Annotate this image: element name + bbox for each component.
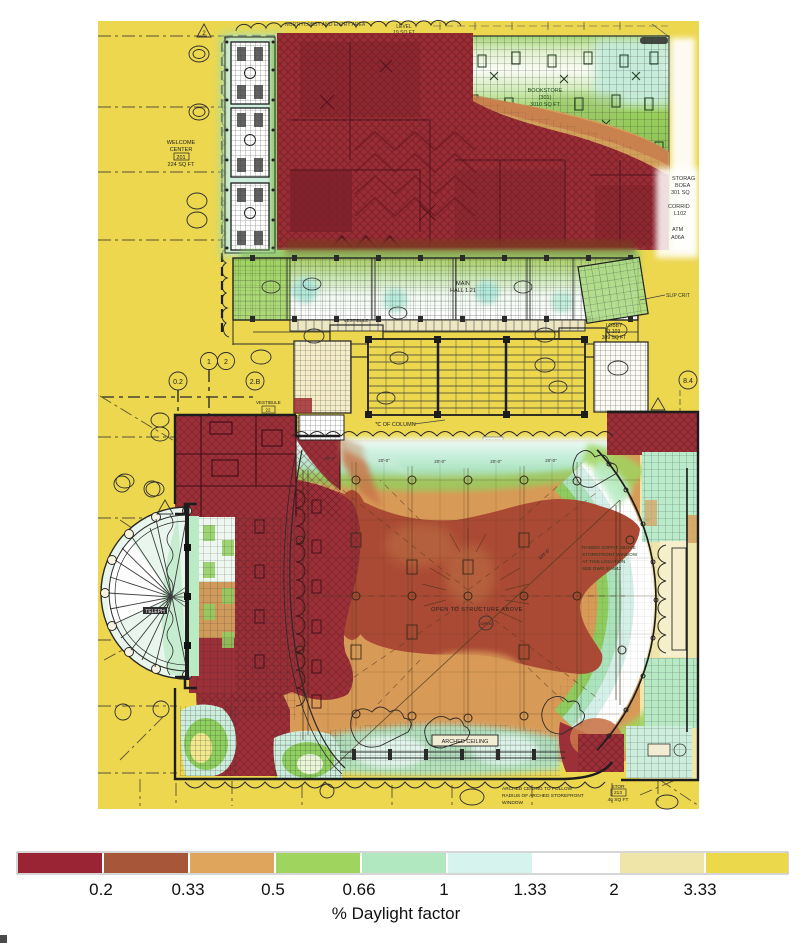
svg-text:0.33: 0.33: [171, 880, 204, 899]
svg-text:0.2: 0.2: [89, 880, 113, 899]
svg-text:1.33: 1.33: [513, 880, 546, 899]
svg-text:22: 22: [265, 408, 271, 413]
svg-text:% Daylight factor: % Daylight factor: [332, 904, 461, 923]
svg-text:RADIUS OF ARCHED STOREFRONT: RADIUS OF ARCHED STOREFRONT: [502, 793, 584, 799]
svg-text:3.33: 3.33: [683, 880, 716, 899]
svg-text:WELCOME: WELCOME: [167, 140, 196, 146]
svg-text:20'-0": 20'-0": [434, 459, 446, 464]
svg-text:BOEA: BOEA: [675, 183, 691, 189]
svg-text:SEE DWG 2/A642: SEE DWG 2/A642: [582, 566, 622, 572]
svg-text:2.B: 2.B: [250, 379, 261, 386]
svg-text:46 SQ FT: 46 SQ FT: [608, 797, 629, 803]
svg-text:AT THIS LOCATION: AT THIS LOCATION: [582, 559, 626, 565]
svg-text:L102: L102: [674, 211, 686, 217]
svg-text:20'-0": 20'-0": [490, 459, 502, 464]
svg-text:213: 213: [614, 790, 622, 796]
svg-text:20'-0": 20'-0": [378, 458, 390, 463]
svg-text:(301): (301): [539, 95, 552, 101]
svg-text:OPEN TO STRUCTURE ABOVE: OPEN TO STRUCTURE ABOVE: [431, 607, 523, 613]
svg-text:VESTIBULE: VESTIBULE: [256, 400, 281, 405]
svg-text:HALL 1.21: HALL 1.21: [450, 288, 476, 294]
svg-text:CENTER: CENTER: [170, 147, 193, 153]
svg-text:0.66: 0.66: [342, 880, 375, 899]
svg-text:20'-0": 20'-0": [545, 458, 557, 463]
svg-text:ATM: ATM: [672, 227, 684, 233]
svg-text:STORAG: STORAG: [672, 176, 695, 182]
svg-text:℃ OF COLUMN: ℃ OF COLUMN: [375, 422, 416, 428]
svg-text:WINDOW: WINDOW: [502, 800, 524, 806]
svg-text:0.5: 0.5: [261, 880, 285, 899]
svg-text:SLIP CRIT: SLIP CRIT: [666, 293, 690, 299]
svg-text:CORRID: CORRID: [668, 204, 690, 210]
svg-text:TELEPH: TELEPH: [145, 609, 165, 615]
svg-text:2: 2: [609, 880, 618, 899]
svg-text:VESTIBULE: VESTIBULE: [344, 318, 369, 323]
svg-text:BOOKSTORE: BOOKSTORE: [528, 88, 563, 94]
svg-text:A06A: A06A: [671, 235, 685, 241]
svg-text:2: 2: [224, 359, 228, 366]
svg-text:RAISED SOFFIT ABOVE: RAISED SOFFIT ABOVE: [582, 545, 636, 551]
svg-text:8.4: 8.4: [683, 378, 693, 385]
svg-text:0.2: 0.2: [173, 379, 183, 386]
svg-text:301 SQ: 301 SQ: [671, 190, 690, 196]
svg-text:1: 1: [439, 880, 448, 899]
svg-text:ARCHED CEILING TO FOLLOW: ARCHED CEILING TO FOLLOW: [502, 786, 573, 792]
svg-text:MAIN: MAIN: [456, 281, 470, 287]
svg-text:1: 1: [207, 359, 211, 366]
svg-text:20'-0": 20'-0": [324, 456, 336, 461]
svg-text:STOREFRONT WINDOW: STOREFRONT WINDOW: [582, 552, 638, 558]
svg-text:224 SQ FT: 224 SQ FT: [168, 162, 196, 168]
